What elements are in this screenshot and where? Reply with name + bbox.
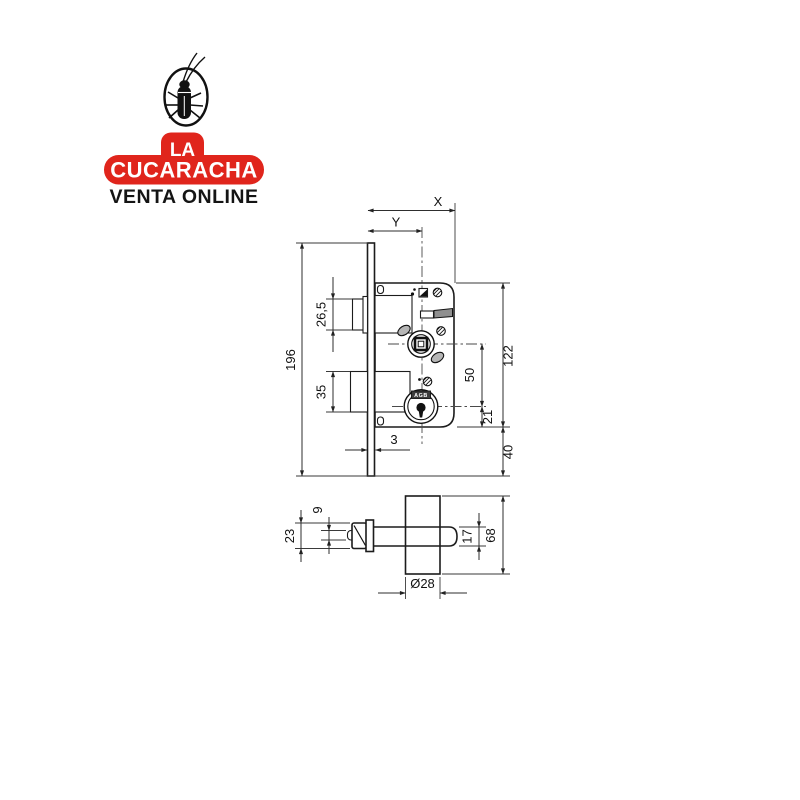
screw-icon <box>433 288 442 297</box>
dim-x: X <box>434 194 443 209</box>
dim-faceplate-height: 196 <box>283 349 298 371</box>
faceplate-section <box>366 520 374 552</box>
stop-block-icon <box>419 289 428 298</box>
latch-flange <box>363 297 368 334</box>
store-logo: LA CUCARACHA VENTA ONLINE <box>104 53 264 208</box>
dim-cylinder-to-edge: 21 <box>480 410 495 424</box>
dim-latch-nose: 9 <box>310 506 325 513</box>
deadbolt <box>351 372 368 413</box>
screw-icon <box>437 327 446 336</box>
dim-axis-distance: 50 <box>462 368 477 382</box>
faceplate <box>368 243 375 476</box>
logo-store-name: CUCARACHA <box>110 158 258 183</box>
lock-side-view: AGB <box>351 227 487 476</box>
dim-shaft-height: 17 <box>460 529 475 543</box>
lock-technical-drawing: LA CUCARACHA VENTA ONLINE <box>0 0 800 800</box>
dim-deadbolt-height: 35 <box>314 385 329 399</box>
pivot-dot <box>411 292 414 295</box>
product-image: LA CUCARACHA VENTA ONLINE <box>0 0 800 800</box>
dim-section-height: 68 <box>483 528 498 542</box>
spindle-follower <box>408 331 434 357</box>
faceplate-slot-bottom <box>378 417 384 425</box>
cylinder-brand-label: AGB <box>414 393 428 399</box>
dim-latch-height: 26,5 <box>314 302 329 327</box>
dimensions-section-view: 23 9 17 68 Ø28 <box>282 496 510 599</box>
dim-bottom-margin: 40 <box>501 445 516 459</box>
dim-case-height: 122 <box>501 345 516 367</box>
pivot-dot-2 <box>413 288 416 291</box>
latch-shaft <box>373 527 457 546</box>
dim-knob-diameter: Ø28 <box>410 576 435 591</box>
lock-section-view <box>348 496 458 574</box>
euro-cylinder: AGB <box>404 390 438 424</box>
logo-subtitle: VENTA ONLINE <box>109 186 258 208</box>
dim-y: Y <box>392 215 401 230</box>
cockroach-icon <box>165 53 208 126</box>
pivot-dot-3 <box>418 378 421 381</box>
dim-latch-head: 23 <box>282 529 297 543</box>
dim-faceplate-thickness: 3 <box>390 432 397 447</box>
faceplate-slot-top <box>378 286 384 294</box>
screw-icon <box>423 377 432 386</box>
